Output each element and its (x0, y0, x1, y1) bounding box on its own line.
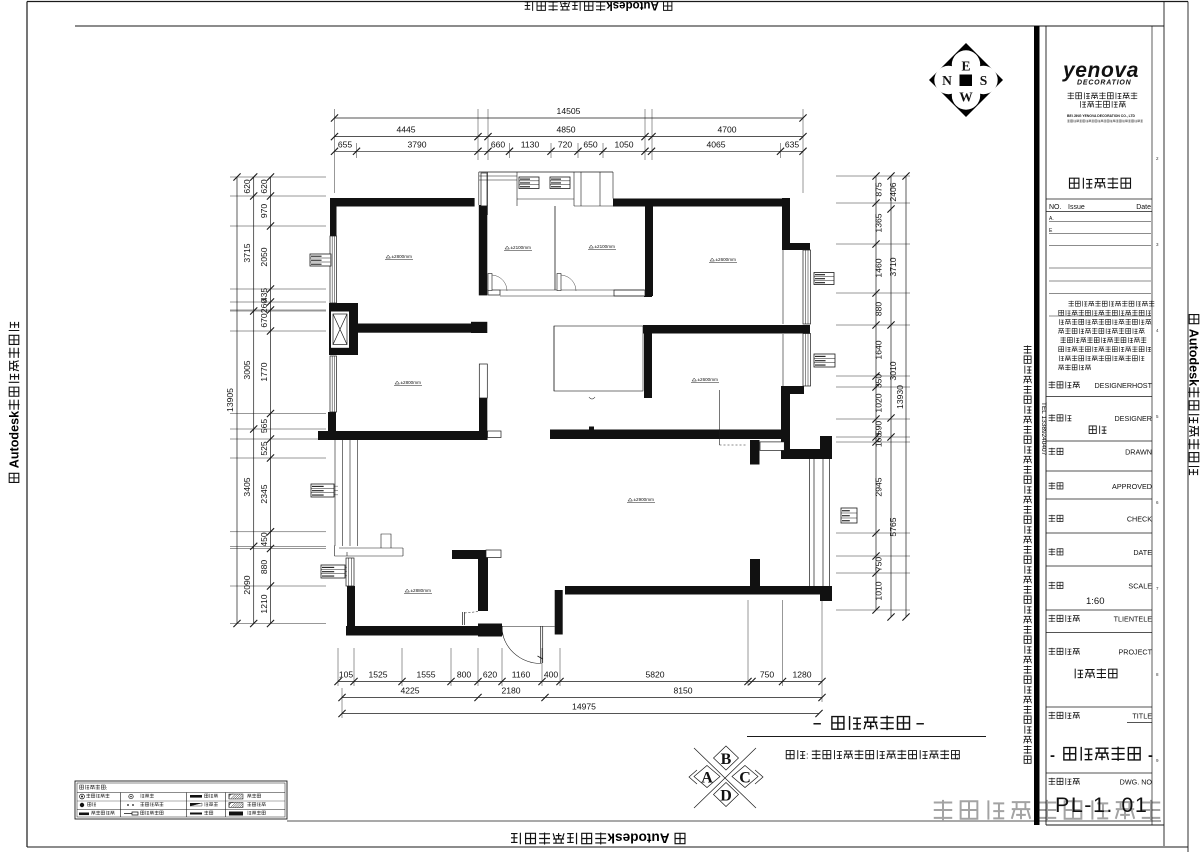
svg-text:5820: 5820 (645, 670, 664, 680)
svg-text:635: 635 (785, 139, 800, 149)
svg-text:13905: 13905 (225, 388, 235, 412)
svg-text:2050: 2050 (259, 247, 269, 266)
svg-text:±2800mm: ±2800mm (392, 254, 413, 259)
svg-text:1210: 1210 (259, 594, 269, 613)
svg-text:4225: 4225 (400, 686, 419, 696)
svg-text:BEI JING YENOVA DECORATION CO.: BEI JING YENOVA DECORATION CO., LTD (1067, 114, 1136, 118)
svg-text:DECORATION: DECORATION (1077, 80, 1132, 87)
svg-text:±2880mm: ±2880mm (411, 588, 432, 593)
svg-text:4445: 4445 (396, 125, 415, 135)
svg-text:DWG. NO: DWG. NO (1120, 778, 1153, 787)
svg-text:B: B (721, 751, 732, 768)
svg-text:4065: 4065 (706, 139, 725, 149)
svg-text:1160: 1160 (512, 670, 531, 680)
svg-text:2090: 2090 (242, 575, 252, 594)
svg-text:Autodesk: Autodesk (607, 831, 670, 846)
svg-text:C: C (739, 770, 751, 787)
svg-text:W: W (959, 90, 973, 105)
svg-text:970: 970 (259, 204, 269, 219)
svg-text:TITLE: TITLE (1132, 712, 1152, 721)
svg-text:1460: 1460 (874, 258, 884, 277)
svg-text:620: 620 (483, 670, 498, 680)
svg-text:±2100mm: ±2100mm (595, 244, 616, 249)
svg-text:565: 565 (259, 419, 269, 434)
svg-text:1:60: 1:60 (1086, 596, 1105, 607)
svg-text:Autodesk: Autodesk (8, 410, 22, 468)
svg-text:4850: 4850 (556, 125, 575, 135)
svg-text:N: N (942, 73, 952, 88)
svg-text:1770: 1770 (259, 362, 269, 381)
svg-text:14975: 14975 (572, 702, 596, 712)
svg-text:3715: 3715 (242, 243, 252, 262)
svg-text:D: D (720, 788, 732, 805)
svg-text::: : (806, 751, 809, 761)
svg-text:1525: 1525 (368, 670, 387, 680)
svg-text:2406: 2406 (888, 182, 898, 201)
svg-text:TEL 13389240407: TEL 13389240407 (1040, 402, 1047, 456)
svg-text:NO.: NO. (1049, 204, 1062, 211)
svg-text:1050: 1050 (614, 139, 633, 149)
svg-text:1555: 1555 (416, 670, 435, 680)
svg-text:800: 800 (457, 670, 472, 680)
svg-text:–: – (916, 715, 924, 732)
svg-text:APPROVED: APPROVED (1112, 482, 1152, 491)
svg-text:-: - (1148, 747, 1153, 764)
svg-text:620: 620 (259, 179, 269, 194)
svg-text:14505: 14505 (557, 106, 581, 116)
svg-text:±2900mm: ±2900mm (634, 497, 655, 502)
svg-text:880: 880 (874, 302, 884, 317)
svg-text:±2600mm: ±2600mm (698, 377, 719, 382)
svg-text:660: 660 (491, 139, 506, 149)
svg-text:PL-1. 01: PL-1. 01 (1055, 793, 1148, 817)
svg-text:1010: 1010 (874, 581, 884, 600)
svg-text:CHECK: CHECK (1127, 515, 1152, 524)
svg-text:±2600mm: ±2600mm (716, 257, 737, 262)
svg-text:A: A (701, 770, 713, 787)
svg-text:DESIGNERHOST: DESIGNERHOST (1094, 381, 1152, 390)
svg-text:750: 750 (760, 670, 775, 680)
svg-text:2345: 2345 (259, 484, 269, 503)
svg-text:2180: 2180 (501, 686, 520, 696)
svg-text:3405: 3405 (242, 477, 252, 496)
svg-text:DATE: DATE (1133, 548, 1152, 557)
svg-text:PROJECT: PROJECT (1118, 648, 1152, 657)
svg-text:650: 650 (583, 139, 598, 149)
svg-text:525: 525 (259, 441, 269, 456)
svg-text:A.: A. (1049, 216, 1054, 222)
svg-text:1280: 1280 (792, 670, 811, 680)
svg-text:655: 655 (338, 139, 353, 149)
svg-text:880: 880 (259, 560, 269, 575)
svg-text:1020: 1020 (874, 393, 884, 412)
svg-text:DESIGNER: DESIGNER (1114, 414, 1152, 423)
svg-text:-: - (1050, 747, 1055, 764)
svg-text:1365: 1365 (874, 213, 884, 232)
svg-text:160: 160 (874, 433, 884, 448)
svg-text:SCALE: SCALE (1128, 582, 1152, 591)
svg-text:±2800mm: ±2800mm (401, 380, 422, 385)
svg-text:750: 750 (874, 557, 884, 572)
svg-text:450: 450 (259, 532, 269, 547)
svg-text:Issue: Issue (1068, 204, 1085, 211)
svg-text:4700: 4700 (717, 125, 736, 135)
svg-text:S: S (980, 73, 988, 88)
svg-text:8150: 8150 (673, 686, 692, 696)
svg-text:E: E (961, 59, 970, 74)
svg-text:3010: 3010 (888, 361, 898, 380)
svg-text:Date: Date (1136, 204, 1151, 211)
svg-text:,: , (956, 751, 959, 761)
svg-text:720: 720 (558, 139, 573, 149)
svg-text:13930: 13930 (895, 385, 905, 409)
svg-text:105: 105 (339, 670, 354, 680)
svg-text:5765: 5765 (888, 517, 898, 536)
svg-text:Autodesk: Autodesk (1186, 329, 1200, 387)
svg-text::: : (106, 786, 107, 792)
svg-text:–: – (813, 715, 821, 732)
svg-text:875: 875 (874, 182, 884, 197)
svg-text:2945: 2945 (874, 477, 884, 496)
svg-text:620: 620 (242, 179, 252, 194)
svg-text:670: 670 (259, 313, 269, 328)
svg-text:3005: 3005 (242, 360, 252, 379)
svg-text:3790: 3790 (407, 139, 426, 149)
svg-text:DRAWN: DRAWN (1125, 448, 1152, 457)
svg-text:400: 400 (544, 670, 559, 680)
svg-text:Autodesk: Autodesk (606, 0, 659, 11)
svg-text:3710: 3710 (888, 257, 898, 276)
svg-text:1130: 1130 (521, 139, 540, 149)
svg-text:±2100mm: ±2100mm (511, 245, 532, 250)
svg-text:TLIENTELE: TLIENTELE (1114, 615, 1153, 624)
svg-text:1640: 1640 (874, 340, 884, 359)
